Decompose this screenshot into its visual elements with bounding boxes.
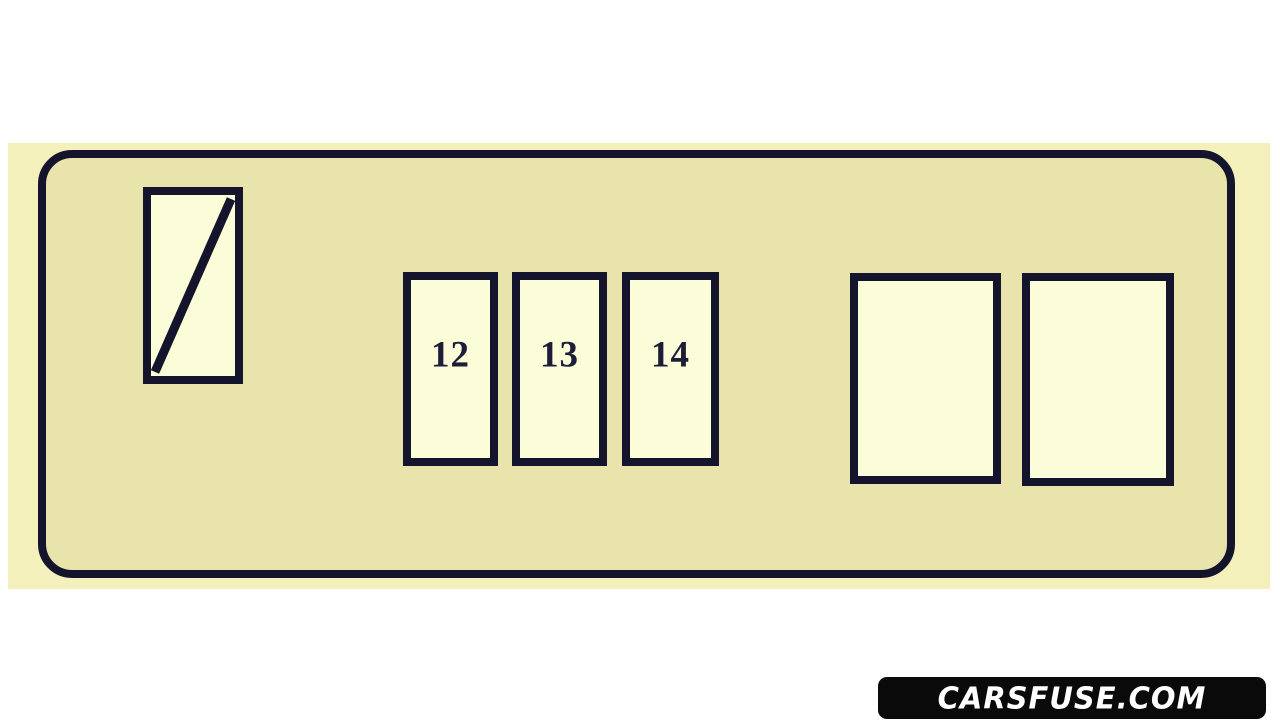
fuse-12-label: 12	[431, 333, 470, 376]
fuse-13-label: 13	[540, 333, 579, 376]
fuse-slot-14: 14	[622, 272, 719, 466]
relay-slot-right	[1022, 273, 1174, 486]
fuse-14-label: 14	[651, 333, 690, 376]
fuse-slot-12: 12	[403, 272, 498, 466]
relay-slot-left	[850, 273, 1001, 484]
diagonal-line-icon	[151, 195, 235, 376]
fuse-box-diagram-page: 12 13 14 CARSFUSE.COM	[0, 0, 1280, 720]
watermark-text: CARSFUSE.COM	[938, 683, 1207, 713]
fuse-slot-13: 13	[512, 272, 607, 466]
fuse-slot-diagonal	[143, 187, 243, 384]
watermark-badge: CARSFUSE.COM	[878, 677, 1266, 719]
